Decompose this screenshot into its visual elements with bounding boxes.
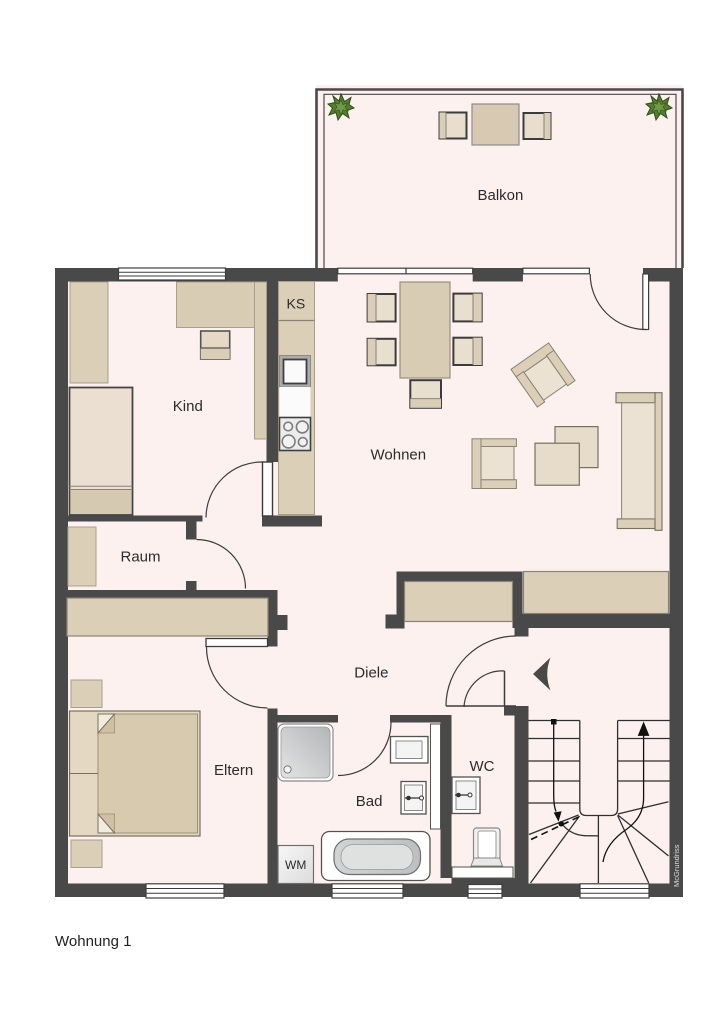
svg-text:WM: WM: [285, 858, 306, 872]
svg-text:McGrundriss: McGrundriss: [672, 844, 681, 887]
svg-text:Balkon: Balkon: [478, 187, 524, 204]
svg-text:KS: KS: [287, 296, 306, 312]
svg-text:Raum: Raum: [121, 549, 161, 566]
svg-text:Wohnen: Wohnen: [371, 447, 427, 464]
svg-text:Wohnung 1: Wohnung 1: [55, 933, 131, 950]
svg-text:Diele: Diele: [354, 664, 388, 681]
svg-text:Kind: Kind: [173, 398, 203, 415]
svg-text:WC: WC: [470, 758, 495, 775]
svg-text:Eltern: Eltern: [214, 762, 253, 779]
svg-text:Bad: Bad: [356, 793, 383, 810]
